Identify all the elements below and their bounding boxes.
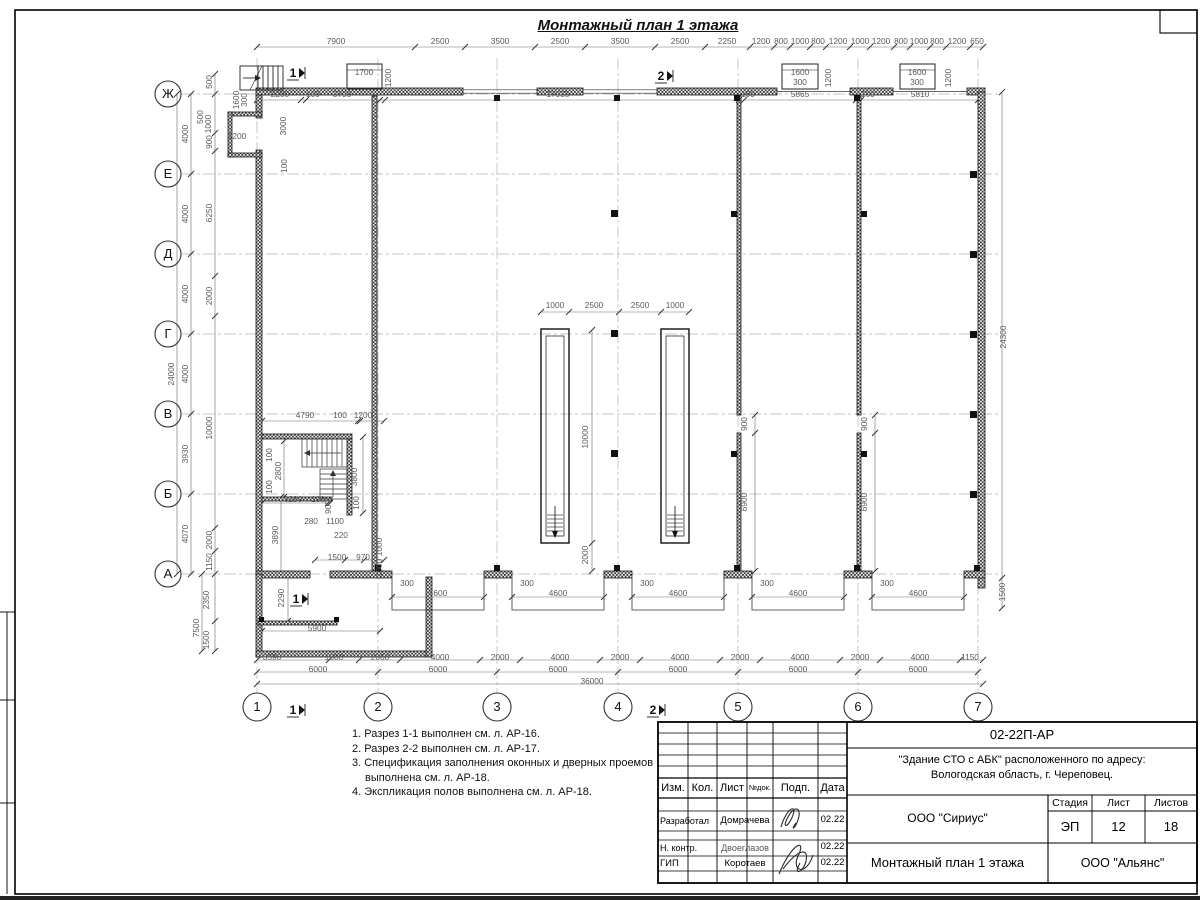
dim-label: 36000 [580, 676, 603, 686]
dim-label: 1000 [791, 36, 810, 46]
tb-role-ncontrol: Н. контр. [660, 841, 716, 855]
dim-label: 6250 [204, 203, 214, 222]
note-item: 1. Разрез 1-1 выполнен см. л. АР-16. [352, 727, 654, 742]
tb-name-gip: Коротаев [717, 857, 773, 871]
note-item: 3. Спецификация заполнения оконных и две… [352, 756, 654, 785]
section-mark-label: 1 [293, 592, 300, 606]
dim-label: 4000 [180, 124, 190, 143]
dim-label: 6000 [909, 664, 928, 674]
section-mark-arrow [667, 71, 673, 81]
tb-sheet-value: 12 [1092, 811, 1145, 843]
dim-label: 4000 [180, 364, 190, 383]
axis-label: 2 [374, 699, 381, 714]
dim-label: 800 [811, 36, 825, 46]
notes-block: 1. Разрез 1-1 выполнен см. л. АР-16.2. Р… [352, 727, 654, 800]
dim-label: 1150 [961, 652, 979, 662]
tb-name-developer: Домрачева [717, 813, 773, 829]
dim-label: 1200 [228, 131, 247, 141]
dim-label: 6900 [859, 492, 869, 511]
dim-label: 2000 [611, 652, 630, 662]
tb-header-izm: Изм. [658, 778, 688, 798]
dim-label: 2500 [551, 36, 570, 46]
dim-label: 1200 [943, 68, 953, 87]
dim-label: 1500 [325, 652, 344, 662]
dim-label: 2290 [276, 588, 286, 607]
section-mark-arrow [302, 594, 308, 604]
dim-label: 3500 [491, 36, 510, 46]
dim-label: 900 [204, 135, 214, 149]
dim-label: 2000 [491, 652, 510, 662]
dim-label: 6900 [739, 492, 749, 511]
axis-label: Ж [162, 86, 174, 101]
dim-label: 1500 [328, 552, 347, 562]
tb-header-podp: Подп. [773, 778, 818, 798]
dim-label: 2060 [371, 652, 390, 662]
dim-label: 100 [861, 89, 875, 99]
exterior-stair [240, 66, 283, 90]
tb-date-ncontrol: 02.22 [818, 840, 847, 854]
tb-date-gip: 02.22 [818, 856, 847, 870]
dim-label: 2350 [201, 590, 211, 609]
section-marks: 12112 [287, 66, 673, 717]
dim-label: 900 [323, 500, 333, 514]
dim-label: 2200 [271, 89, 290, 99]
dim-label: 1000 [546, 300, 565, 310]
dim-label: 1000 [851, 36, 870, 46]
section-mark-arrow [659, 705, 665, 715]
dim-label: 300 [760, 578, 774, 588]
axis-label: 6 [854, 699, 861, 714]
tb-role-developer: Разработал [660, 813, 716, 829]
dim-label: 300 [910, 77, 924, 87]
dim-label: 1000 [203, 114, 213, 133]
dim-label: 4600 [429, 588, 448, 598]
section-mark-label: 1 [290, 66, 297, 80]
tb-role-gip: ГИП [660, 857, 716, 871]
tb-header-kol: Кол. [688, 778, 717, 798]
tb-sheet-label: Лист [1092, 795, 1145, 811]
axis-label: 1 [253, 699, 260, 714]
dim-label: 2000 [204, 286, 214, 305]
dim-label: 2500 [671, 36, 690, 46]
section-mark-arrow [299, 68, 305, 78]
dim-label: 4000 [431, 652, 450, 662]
dim-label: 100 [264, 480, 274, 494]
dim-label: 6000 [429, 664, 448, 674]
project-name-line2: Вологодская область, г. Череповец. [847, 766, 1197, 784]
tb-org2: ООО "Альянс" [1048, 843, 1197, 883]
tb-stage-label: Стадия [1048, 795, 1092, 811]
dim-label: 3890 [270, 525, 280, 544]
dim-label: 900 [859, 417, 869, 431]
tb-org1: ООО "Сириус" [847, 795, 1048, 843]
dim-label: 3930 [180, 444, 190, 463]
dim-label: 1200 [872, 36, 891, 46]
dim-label: 5810 [911, 89, 930, 99]
dim-label: 800 [774, 36, 788, 46]
tb-date-developer: 02.22 [818, 812, 847, 828]
dim-label: 4600 [549, 588, 568, 598]
axis-label: 3 [493, 699, 500, 714]
axis-label: Е [164, 166, 173, 181]
dim-label: 4000 [180, 284, 190, 303]
dim-label: 1000 [910, 36, 929, 46]
section-mark-arrow [299, 705, 305, 715]
section-mark-label: 2 [650, 703, 657, 717]
dim-label: 4600 [669, 588, 688, 598]
dim-label: 220 [334, 530, 348, 540]
dim-label: 24300 [998, 325, 1008, 348]
dim-label: 1500 [997, 582, 1007, 601]
dim-label: 900 [739, 417, 749, 431]
tb-name-ncontrol: Двоеглазов [717, 841, 773, 855]
dim-label: 4070 [180, 524, 190, 543]
dim-label: 1200 [948, 36, 967, 46]
dim-label: 300 [520, 578, 534, 588]
dim-label: 300 [793, 77, 807, 87]
dim-label: 4600 [789, 588, 808, 598]
entrance-porches [347, 64, 935, 89]
tb-header-list: Лист [717, 778, 747, 798]
dim-label: 2000 [204, 530, 214, 549]
dimension-labels: 7900250035002500350025002250120080010008… [166, 36, 1008, 686]
dim-label: 100 [306, 89, 320, 99]
axis-label: Б [164, 486, 173, 501]
dim-label: 1600 [791, 67, 810, 77]
building-walls [228, 88, 985, 657]
dim-label: 5900 [308, 623, 327, 633]
dim-label: 2500 [431, 36, 450, 46]
tb-drawing-name: Монтажный план 1 этажа [847, 843, 1048, 883]
dim-label: 1200 [823, 68, 833, 87]
dim-label: 1200 [829, 36, 848, 46]
axis-label: 7 [974, 699, 981, 714]
dim-label: 300 [239, 93, 249, 107]
dim-label: 1100 [326, 516, 344, 526]
stairwell-flights [302, 439, 347, 499]
dim-label: 2500 [631, 300, 650, 310]
dim-label: 800 [894, 36, 908, 46]
dim-label: 2800 [273, 461, 283, 480]
dim-label: 100 [279, 159, 289, 173]
note-item: 4. Экспликация полов выполнена см. л. АР… [352, 785, 654, 800]
dim-label: 2500 [585, 300, 604, 310]
dim-label: 17935 [546, 89, 569, 99]
dim-label: 3790 [333, 89, 352, 99]
dim-label: 1000 [374, 558, 384, 577]
doc-number: 02-22П-АР [847, 724, 1197, 746]
dim-label: 300 [640, 578, 654, 588]
dim-label: 1200 [383, 68, 393, 87]
tb-header-ndok: №док. [747, 778, 773, 798]
dim-label: 4000 [551, 652, 570, 662]
dim-label: 300 [880, 578, 894, 588]
dim-label: 24000 [166, 362, 176, 385]
dimension-lines [174, 44, 1005, 687]
dim-label: 4000 [180, 204, 190, 223]
dim-label: 1000 [374, 537, 384, 556]
corner-stamp-box [1160, 10, 1197, 33]
dim-label: 4600 [909, 588, 928, 598]
dim-label: 4000 [671, 652, 690, 662]
dim-label: 100 [741, 89, 755, 99]
dim-label: 3290 [284, 494, 303, 504]
dim-label: 4790 [296, 410, 315, 420]
dim-label: 1600 [908, 67, 927, 77]
dim-label: 3800 [349, 467, 359, 486]
dim-label: 4000 [911, 652, 930, 662]
section-mark-label: 2 [658, 69, 665, 83]
dim-label: 6000 [669, 664, 688, 674]
note-item: 2. Разрез 2-2 выполнен см. л. АР-17. [352, 742, 654, 757]
dim-label: 1700 [355, 67, 374, 77]
axis-label: В [164, 406, 173, 421]
dim-label: 2000 [580, 545, 590, 564]
dim-label: 2250 [718, 36, 737, 46]
axis-label: Д [164, 246, 173, 261]
dim-label: 10000 [580, 425, 590, 448]
sheet-bottom-strip [0, 896, 1200, 900]
dim-label: 3590 [263, 652, 282, 662]
dim-label: 1150 [204, 553, 214, 571]
axis-label: А [164, 566, 173, 581]
tb-stage-value: ЭП [1048, 811, 1092, 843]
dim-label: 500 [204, 75, 214, 89]
tb-sheets-label: Листов [1145, 795, 1197, 811]
dim-label: 2000 [731, 652, 750, 662]
drawing-sheet: 7900250035002500350025002250120080010008… [0, 0, 1200, 900]
dim-label: 650 [970, 36, 984, 46]
dim-label: 3500 [611, 36, 630, 46]
tb-sheets-value: 18 [1145, 811, 1197, 843]
dim-label: 1000 [666, 300, 685, 310]
page-title: Монтажный план 1 этажа [478, 17, 798, 34]
dim-label: 100 [333, 410, 347, 420]
dim-label: 4000 [791, 652, 810, 662]
axis-label: 5 [734, 699, 741, 714]
dim-label: 100 [264, 448, 274, 462]
dim-label: 1200 [354, 410, 373, 420]
dim-label: 7900 [327, 36, 346, 46]
dim-label: 300 [400, 578, 414, 588]
dim-label: 1200 [752, 36, 771, 46]
dim-label: 7500 [191, 618, 201, 637]
dim-label: 280 [304, 516, 318, 526]
dim-label: 2000 [851, 652, 870, 662]
axis-label: Г [164, 326, 171, 341]
dim-label: 1500 [201, 630, 211, 649]
dim-label: 970 [356, 552, 370, 562]
signature [779, 809, 813, 874]
dim-label: 5865 [791, 89, 810, 99]
dim-label: 10000 [204, 416, 214, 439]
dim-label: 6000 [789, 664, 808, 674]
dim-label: 3000 [278, 116, 288, 135]
dim-label: 100 [351, 496, 361, 510]
dim-label: 6000 [309, 664, 328, 674]
tb-header-data: Дата [818, 778, 847, 798]
section-mark-label: 1 [290, 703, 297, 717]
inspection-pits [541, 329, 689, 543]
dim-label: 800 [930, 36, 944, 46]
axis-label: 4 [614, 699, 621, 714]
dim-label: 6000 [549, 664, 568, 674]
